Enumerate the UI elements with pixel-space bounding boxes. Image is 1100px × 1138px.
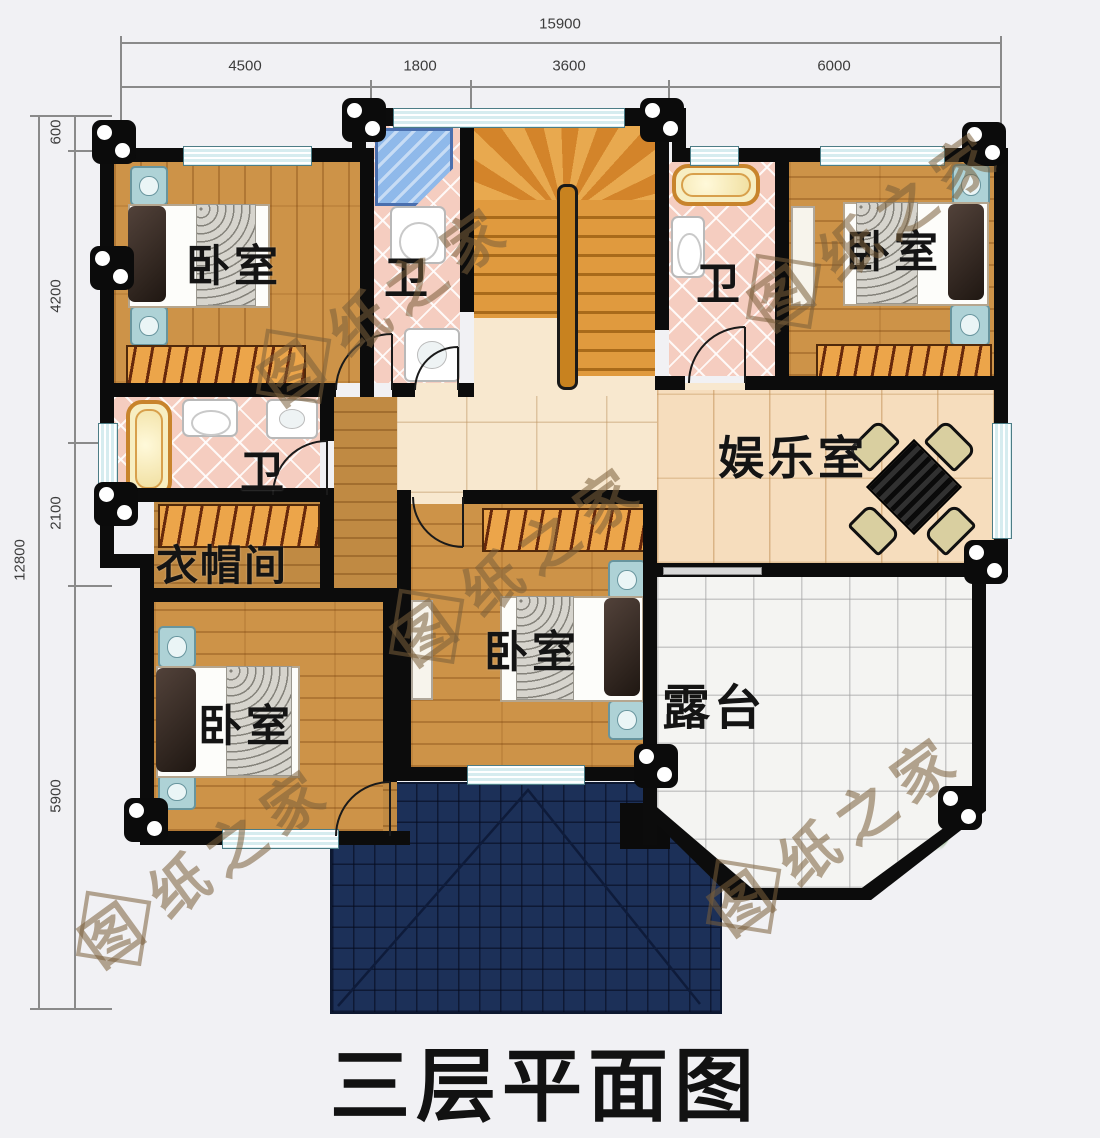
nightstand (158, 626, 196, 668)
window (183, 146, 312, 166)
bed-headboard (156, 668, 196, 772)
wall (392, 383, 415, 397)
wall (383, 836, 397, 845)
window (992, 423, 1012, 539)
dim-top-seg-2: 1800 (403, 58, 436, 75)
floor-plan-page: { "title": "三层平面图", "watermark": "图纸之家",… (0, 0, 1100, 1128)
nightstand (608, 560, 646, 600)
window (690, 146, 739, 166)
wall (320, 397, 334, 441)
room-label-bedroom-top-left: 卧室 (186, 230, 282, 294)
dimension-tick (30, 1008, 112, 1010)
wall (643, 490, 657, 845)
dim-left-seg-1: 600 (48, 119, 65, 144)
window (393, 108, 625, 128)
structural-column (640, 98, 684, 142)
room-label-bedroom-bottom-left: 卧室 (198, 690, 294, 754)
nightstand (130, 166, 168, 206)
nightstand (608, 700, 646, 740)
room-label-entertainment: 娱乐室 (718, 422, 868, 488)
room-label-cloakroom: 衣帽间 (156, 532, 288, 593)
dim-left-total: 12800 (12, 539, 29, 581)
dimension-tick (30, 115, 112, 117)
dim-left-seg-3: 2100 (48, 496, 65, 529)
bed-headboard (604, 598, 640, 696)
bathtub (672, 164, 760, 206)
dim-top-seg-4: 6000 (817, 58, 850, 75)
stair-rail (557, 184, 578, 390)
dim-left-seg-2: 4200 (48, 279, 65, 312)
dim-top-seg-3: 3600 (552, 58, 585, 75)
dimension-tick (1000, 36, 1002, 125)
wall (320, 495, 334, 602)
structural-column (342, 98, 386, 142)
drawing-title: 三层平面图 (330, 1022, 760, 1138)
nightstand (950, 304, 990, 346)
dim-left-seg-4: 5900 (48, 779, 65, 812)
dimension-tick (68, 585, 112, 587)
structural-column (124, 798, 168, 842)
wall (458, 383, 474, 397)
structural-column (634, 744, 678, 788)
nightstand (130, 306, 168, 346)
dim-top-total: 15900 (539, 16, 581, 33)
structural-column (90, 246, 134, 290)
toilet (182, 399, 238, 437)
wall (655, 376, 685, 390)
stair-flight-right (572, 200, 655, 376)
sink (404, 328, 460, 382)
window (467, 765, 585, 785)
terrace-sliding-door (663, 567, 762, 575)
structural-column (94, 482, 138, 526)
dimension-tick (120, 36, 122, 125)
room-label-terrace: 露台 (662, 668, 766, 738)
structural-column (964, 540, 1008, 584)
structural-column (92, 120, 136, 164)
dim-top-seg-1: 4500 (228, 58, 261, 75)
room-label-bath-left: 卫 (240, 436, 288, 500)
wall (655, 126, 669, 330)
wall (745, 376, 1008, 390)
